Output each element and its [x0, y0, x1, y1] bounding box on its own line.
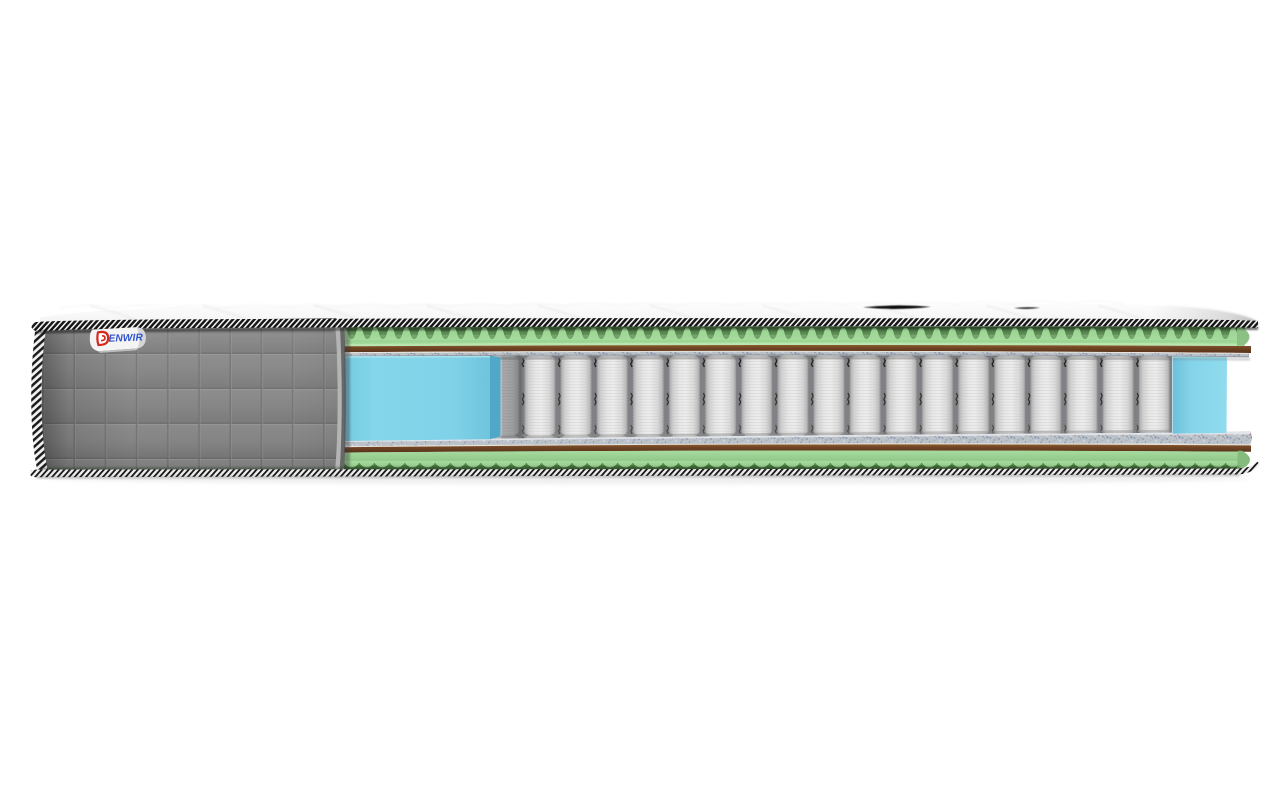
svg-text:ENWIR: ENWIR [108, 333, 143, 345]
